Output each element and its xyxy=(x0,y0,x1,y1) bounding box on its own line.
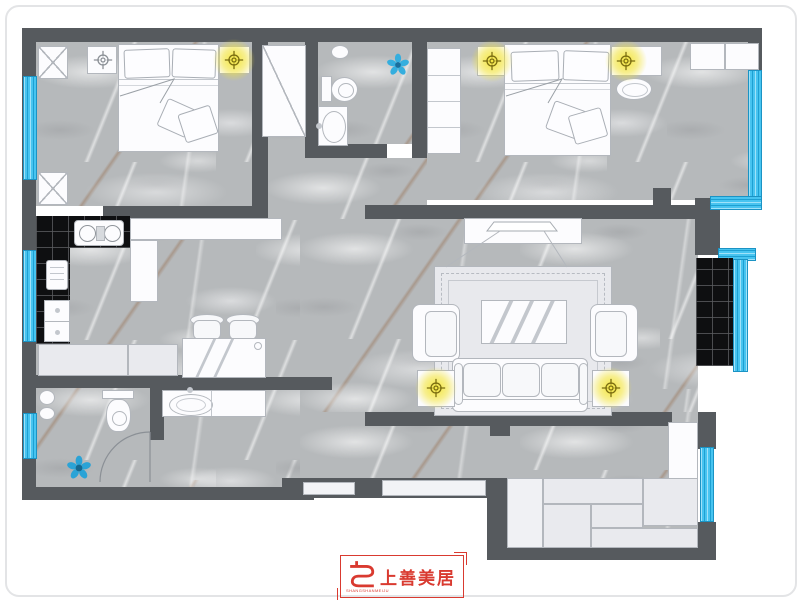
cabinet-panel xyxy=(591,504,643,528)
toilet-bowl xyxy=(106,399,131,432)
window-storage xyxy=(700,447,714,522)
window-bedroom-right xyxy=(748,70,762,198)
kitchen-sink-cabinet xyxy=(44,300,70,342)
window-living-bay xyxy=(733,259,748,372)
washbasin xyxy=(169,394,213,416)
wall-bedroom-right-left xyxy=(412,42,427,144)
dining-chair xyxy=(193,320,221,340)
wall-bedroom-right-bottom xyxy=(365,205,695,219)
wall-stub xyxy=(412,144,427,158)
entry-door-panel xyxy=(303,482,355,495)
sofa-cushion xyxy=(463,363,501,397)
board-line xyxy=(50,279,64,280)
pillow xyxy=(510,50,559,82)
double-bed xyxy=(504,44,611,156)
faucet xyxy=(187,387,193,393)
corner-cabinet-icon xyxy=(38,46,68,79)
cabinet-panel xyxy=(543,478,643,504)
sofa-backrest-line xyxy=(453,399,587,400)
ceiling-light-icon xyxy=(589,366,633,410)
armchair xyxy=(412,304,460,362)
washbasin-counter xyxy=(162,390,266,417)
wardrobe xyxy=(262,45,306,137)
stove-panel xyxy=(96,226,105,241)
toilet-bowl-inner xyxy=(112,411,127,426)
cabinet-panel xyxy=(591,528,698,548)
shelf-line xyxy=(428,75,460,76)
double-bed xyxy=(118,44,219,152)
window-bathroom-bottom xyxy=(23,413,37,459)
sofa-cushion xyxy=(541,363,579,397)
shelf-line xyxy=(428,101,460,102)
toilet-bowl xyxy=(331,77,358,102)
faucet xyxy=(316,123,322,129)
floor-drain-plant-icon xyxy=(66,455,92,481)
window-bedroom-left xyxy=(23,76,37,180)
ceiling-light-icon xyxy=(604,39,648,83)
wall-storage-right-upper xyxy=(698,412,716,449)
sofa xyxy=(452,358,588,412)
divider xyxy=(211,391,212,416)
tv-stand xyxy=(464,218,582,244)
wardrobe xyxy=(427,48,461,154)
ceiling-light-icon xyxy=(212,38,256,82)
sofa-cushion xyxy=(502,363,540,397)
fixture-circle xyxy=(39,390,55,405)
sheet-line xyxy=(505,83,610,84)
armchair xyxy=(590,304,638,362)
window-kitchen xyxy=(23,250,37,342)
coffee-table xyxy=(481,300,567,344)
wall-top xyxy=(22,28,762,42)
corner-cabinet xyxy=(725,43,759,70)
corner-cabinet xyxy=(690,43,725,70)
fixture-circle xyxy=(39,407,55,420)
table-detail xyxy=(254,342,262,350)
shelf-line xyxy=(428,127,460,128)
ceiling-light-icon xyxy=(470,39,514,83)
counter-leg xyxy=(130,240,158,302)
cabinet-diagonal xyxy=(507,478,543,548)
knob xyxy=(55,308,60,313)
wall-stub xyxy=(653,188,671,206)
bathroom-light xyxy=(331,45,349,59)
dining-table xyxy=(182,338,266,378)
low-cabinet xyxy=(38,344,128,376)
logo-brand-text: 上善美居 xyxy=(380,564,456,589)
cabinet-panel xyxy=(643,478,698,526)
pillow xyxy=(172,48,217,79)
divider xyxy=(45,321,69,322)
ceiling-light-icon xyxy=(81,38,125,82)
washbasin-cabinet xyxy=(318,106,348,146)
glass-stripes xyxy=(183,339,265,377)
floor-plan: SHANGSHANMEIJU 上善美居 xyxy=(0,0,800,600)
wall-bottom-left xyxy=(22,487,314,500)
toilet-bowl-inner xyxy=(338,83,354,98)
sofa-arm xyxy=(579,363,588,405)
glass-stripes xyxy=(482,301,566,343)
cutting-board xyxy=(46,260,68,290)
washbasin xyxy=(322,111,346,143)
washbasin-inner xyxy=(176,398,206,412)
wall-bathroom-left xyxy=(305,42,318,156)
brand-logo: SHANGSHANMEIJU 上善美居 xyxy=(340,555,464,598)
sheet-line xyxy=(119,85,218,86)
sheet-line xyxy=(505,89,610,90)
toilet-tank xyxy=(102,390,134,399)
armchair-seat xyxy=(595,311,627,357)
sliding-panel xyxy=(382,480,486,496)
window-bedroom-right-wrap xyxy=(710,196,762,210)
board-line xyxy=(50,267,64,268)
burner xyxy=(104,225,121,242)
armchair-seat xyxy=(425,311,457,357)
stool-top xyxy=(622,83,648,97)
closet-column xyxy=(668,422,698,480)
ceiling-light-icon xyxy=(414,366,458,410)
plant-icon xyxy=(386,53,410,77)
sheet-line xyxy=(119,79,218,80)
burner xyxy=(79,225,96,242)
wall-storage-right-lower xyxy=(698,522,716,560)
pillow xyxy=(124,48,171,79)
corner-cabinet-icon xyxy=(38,172,68,205)
wall-storage-bottom xyxy=(487,546,716,560)
pillow xyxy=(562,50,609,82)
dining-chair xyxy=(229,320,257,340)
knob xyxy=(55,330,60,335)
counter-top xyxy=(130,218,282,240)
board-line xyxy=(50,273,64,274)
logo-glyph-icon xyxy=(348,560,376,588)
wall-vanity-top xyxy=(150,377,332,390)
cabinet-panel xyxy=(543,504,591,548)
low-cabinet xyxy=(128,344,178,376)
gas-stove xyxy=(74,220,124,246)
bay-window-seat-black xyxy=(696,258,733,366)
wall-bathroom-bottom xyxy=(305,144,387,158)
